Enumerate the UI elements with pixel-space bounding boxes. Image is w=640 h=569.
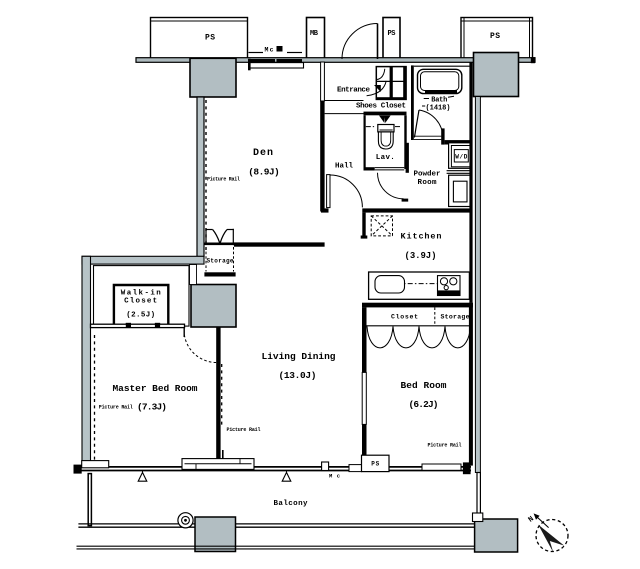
svg-text:(2.5J): (2.5J): [126, 312, 155, 320]
svg-text:Room: Room: [418, 179, 437, 187]
svg-text:PS: PS: [490, 32, 500, 41]
svg-text:Picture Rail: Picture Rail: [99, 405, 133, 411]
svg-text:Closet: Closet: [124, 298, 157, 306]
svg-text:Picture Rail: Picture Rail: [207, 177, 240, 183]
svg-text:Hall: Hall: [335, 162, 353, 170]
svg-text:Storage: Storage: [207, 258, 234, 265]
svg-text:Picture Rail: Picture Rail: [428, 443, 462, 449]
svg-text:Picture Rail: Picture Rail: [227, 427, 261, 433]
svg-text:Entrance: Entrance: [337, 87, 370, 95]
svg-text:(8.9J): (8.9J): [248, 167, 280, 178]
svg-text:Kitchen: Kitchen: [401, 231, 442, 241]
svg-text:(7.3J): (7.3J): [137, 402, 167, 413]
svg-text:PS: PS: [205, 34, 215, 43]
svg-text:(1418): (1418): [426, 104, 451, 112]
svg-text:PS: PS: [371, 461, 379, 468]
svg-text:PS: PS: [388, 30, 396, 38]
svg-text:Lav.: Lav.: [376, 154, 395, 162]
svg-text:Living Dining: Living Dining: [262, 351, 336, 362]
svg-text:Powder: Powder: [414, 171, 441, 179]
svg-text:Balcony: Balcony: [274, 500, 308, 508]
svg-text:Shoes Closet: Shoes Closet: [356, 103, 406, 111]
svg-text:Mc: Mc: [265, 47, 274, 54]
svg-text:Storage: Storage: [441, 313, 470, 320]
svg-text:W/D: W/D: [455, 153, 467, 160]
svg-text:MB: MB: [310, 30, 319, 38]
svg-text:Den: Den: [253, 148, 273, 159]
svg-text:Closet: Closet: [391, 313, 418, 320]
svg-text:(6.2J): (6.2J): [409, 399, 439, 410]
svg-text:Master Bed Room: Master Bed Room: [113, 383, 198, 394]
svg-text:(13.0J): (13.0J): [279, 370, 317, 381]
svg-text:Bed Room: Bed Room: [401, 380, 447, 391]
svg-text:(3.9J): (3.9J): [405, 251, 437, 261]
